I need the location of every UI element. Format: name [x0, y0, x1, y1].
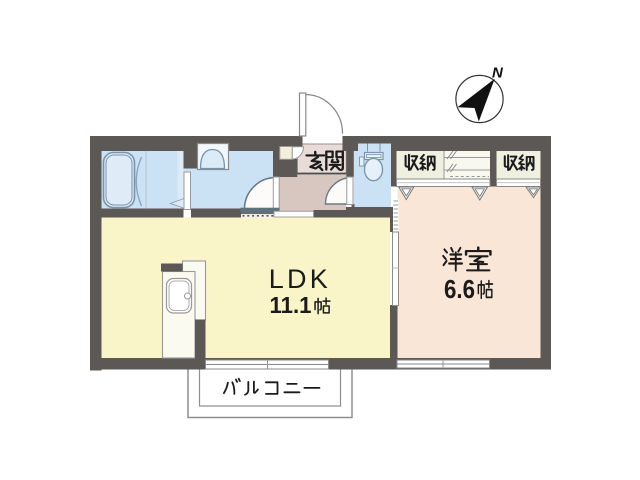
svg-text:11.1: 11.1 — [270, 292, 312, 318]
svg-text:N: N — [492, 65, 504, 82]
svg-text:LDK: LDK — [269, 264, 331, 294]
svg-text:6.6: 6.6 — [444, 276, 475, 304]
